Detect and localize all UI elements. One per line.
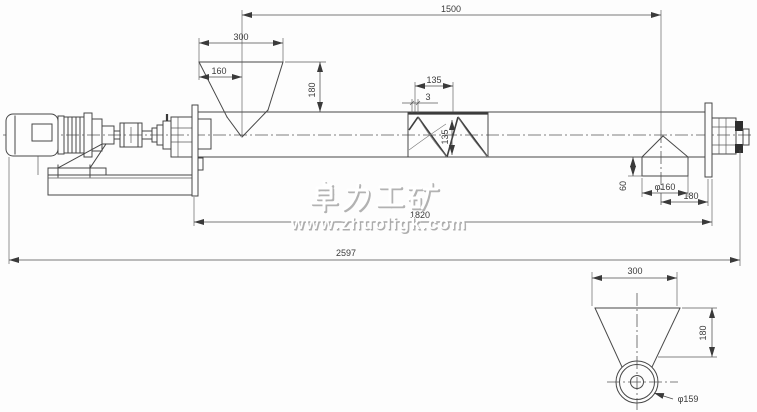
dim-screw-diameter: 135 <box>440 129 450 144</box>
dim-hopper-left-to-center: 160 <box>211 66 226 76</box>
conveyor-assembly-drawing: 1500 300 160 180 135 3 135 60 φ160 180 1… <box>0 0 757 412</box>
drive-motor <box>6 114 64 156</box>
dim-flight-thickness: 3 <box>425 92 430 102</box>
dim-outlet-diameter: φ160 <box>655 182 676 192</box>
dim-detail-hopper-width: 300 <box>627 266 642 276</box>
dim-detail-hopper-depth: 180 <box>698 325 708 340</box>
base-frame <box>38 156 194 195</box>
front-flange-plate <box>192 105 211 196</box>
dim-outlet-center-to-flange: 180 <box>683 191 698 201</box>
screw-conveyor-drawing-canvas: 1500 300 160 180 135 3 135 60 φ160 180 1… <box>0 0 757 412</box>
dim-inlet-to-outlet: 1500 <box>441 4 461 14</box>
watermark-brand <box>312 182 439 212</box>
dim-detail-pipe-diameter: φ159 <box>678 394 699 404</box>
dim-screw-pitch: 135 <box>426 75 441 85</box>
discharge-outlet <box>642 136 688 176</box>
end-bearing-assembly <box>705 103 749 177</box>
tube-body <box>198 112 705 157</box>
dim-hopper-height: 180 <box>307 82 317 97</box>
dim-outlet-stub-height: 60 <box>618 181 628 191</box>
dim-hopper-top-width: 300 <box>233 32 248 42</box>
watermark-url: www.zhuoligk.com <box>290 214 467 233</box>
stuffing-box <box>152 114 192 157</box>
dim-overall-length: 2597 <box>336 248 356 258</box>
